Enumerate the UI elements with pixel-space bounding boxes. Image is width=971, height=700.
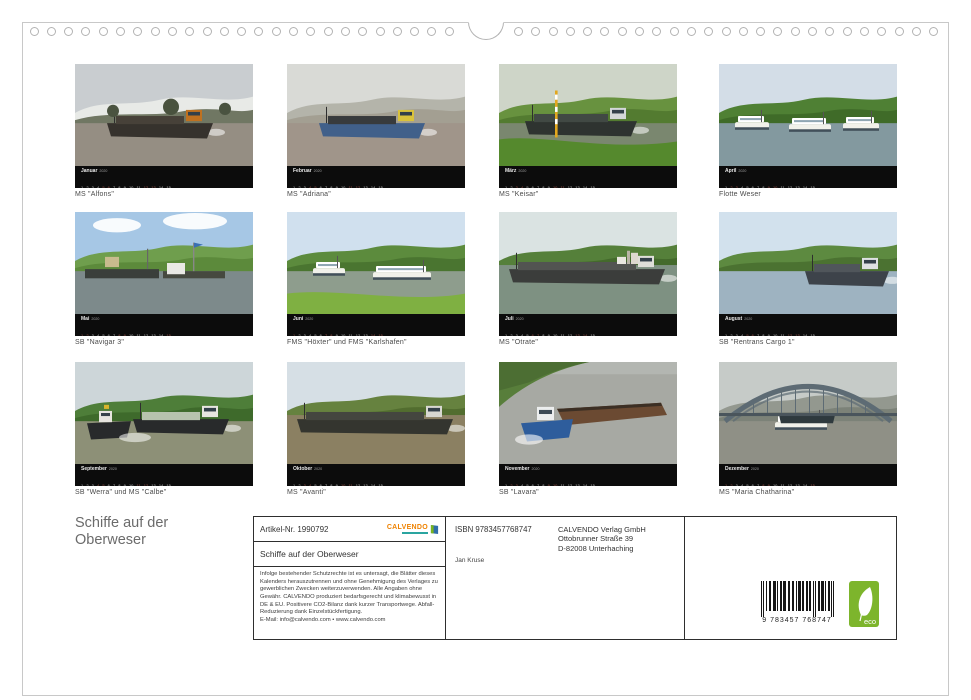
binding-hole xyxy=(756,27,765,36)
thumbnail-caption: Flotte Weser xyxy=(719,191,897,198)
binding-hole xyxy=(185,27,194,36)
binding-hole xyxy=(514,27,523,36)
mini-calendar-strip: Dezember2020 123456789101112131415 16171… xyxy=(719,464,897,486)
binding-hole xyxy=(427,27,436,36)
month-thumbnail: April2020 123456789101112131415 16171819… xyxy=(719,64,897,198)
publisher-name: CALVENDO Verlag GmbH xyxy=(558,525,646,534)
binding-hole xyxy=(116,27,125,36)
month-thumbnail: März2020 123456789101112131415 161718192… xyxy=(499,64,677,198)
calvendo-logo: CALVENDO xyxy=(387,524,439,535)
binding-hole xyxy=(341,27,350,36)
binding-hole xyxy=(47,27,56,36)
month-photo: Februar2020 123456789101112131415 161718… xyxy=(287,64,465,188)
mini-calendar-days: 123456789101112131415 161718192021222324… xyxy=(725,176,895,187)
binding-hole xyxy=(670,27,679,36)
mini-calendar-strip: März2020 123456789101112131415 161718192… xyxy=(499,166,677,188)
barcode-cell: 9 783457 768747 eco xyxy=(685,517,896,639)
page-title: Schiffe auf der Oberweser xyxy=(75,515,168,550)
binding-hole xyxy=(531,27,540,36)
month-photo: Juni2020 123456789101112131415 161718192… xyxy=(287,212,465,336)
month-label: April xyxy=(725,168,736,174)
month-photo-scene xyxy=(287,362,465,464)
mini-calendar-days: 123456789101112131415 161718192021222324… xyxy=(725,474,895,485)
month-photo: Juli2020 123456789101112131415 161718192… xyxy=(499,212,677,336)
month-thumbnail: Oktober2020 123456789101112131415 161718… xyxy=(287,362,465,496)
binding-hole xyxy=(600,27,609,36)
year-label: 2020 xyxy=(99,169,107,173)
thumbnail-caption: MS "Avanti" xyxy=(287,489,465,496)
binding-hole xyxy=(739,27,748,36)
month-thumbnail: Dezember2020 123456789101112131415 16171… xyxy=(719,362,897,496)
isbn: ISBN 9783457768747 xyxy=(455,525,532,534)
mini-calendar-days: 123456789101112131415 161718192021222324… xyxy=(505,474,675,485)
month-thumbnail: September2020 123456789101112131415 1617… xyxy=(75,362,253,496)
binding-hole xyxy=(151,27,160,36)
contact-line: E-Mail: info@calvendo.com • www.calvendo… xyxy=(260,617,439,625)
thumbnail-caption: MS "Maria Chatharina" xyxy=(719,489,897,496)
mini-calendar-days: 123456789101112131415 161718192021222324… xyxy=(81,176,251,187)
month-label: November xyxy=(505,466,529,472)
month-label: September xyxy=(81,466,107,472)
month-label: Juli xyxy=(505,316,514,322)
calendar-back-page: Januar2020 123456789101112131415 1617181… xyxy=(22,22,949,696)
calvendo-tagline xyxy=(402,532,428,534)
binding-hole xyxy=(358,27,367,36)
artikel-nr: Artikel-Nr. 1990792 xyxy=(260,525,328,534)
binding-hole xyxy=(133,27,142,36)
month-photo-scene xyxy=(287,64,465,166)
binding-hole xyxy=(410,27,419,36)
mini-calendar-strip: Juni2020 123456789101112131415 161718192… xyxy=(287,314,465,336)
month-label: Juni xyxy=(293,316,303,322)
year-label: 2020 xyxy=(738,169,746,173)
month-thumbnail: November2020 123456789101112131415 16171… xyxy=(499,362,677,496)
month-thumbnail: Juni2020 123456789101112131415 161718192… xyxy=(287,212,465,346)
month-label: Dezember xyxy=(725,466,749,472)
publisher-street: Ottobrunner Straße 39 xyxy=(558,534,646,543)
binding-hole xyxy=(324,27,333,36)
publisher-city: D-82008 Unterhaching xyxy=(558,544,646,553)
product-info-box: Artikel-Nr. 1990792 CALVENDO Schiffe auf… xyxy=(253,516,897,640)
binding-hole xyxy=(306,27,315,36)
binding-hole xyxy=(722,27,731,36)
year-label: 2020 xyxy=(91,317,99,321)
thumbnail-caption: FMS "Höxter" und FMS "Karlshafen" xyxy=(287,339,465,346)
binding-hole xyxy=(877,27,886,36)
calvendo-logo-icon xyxy=(430,524,439,535)
product-info-cell: Artikel-Nr. 1990792 CALVENDO Schiffe auf… xyxy=(254,517,446,639)
mini-calendar-days: 123456789101112131415 161718192021222324… xyxy=(293,324,463,335)
binding-hole xyxy=(773,27,782,36)
binding-hole xyxy=(618,27,627,36)
binding-hole xyxy=(549,27,558,36)
binding-hole xyxy=(289,27,298,36)
publisher-cell: ISBN 9783457768747 Jan Kruse CALVENDO Ve… xyxy=(446,517,685,639)
binding-hole xyxy=(808,27,817,36)
month-thumbnail: Februar2020 123456789101112131415 161718… xyxy=(287,64,465,198)
thumbnail-caption: MS "Otrate" xyxy=(499,339,677,346)
mini-calendar-strip: April2020 123456789101112131415 16171819… xyxy=(719,166,897,188)
month-thumbnail: Januar2020 123456789101112131415 1617181… xyxy=(75,64,253,198)
month-label: Mai xyxy=(81,316,89,322)
mini-calendar-strip: Juli2020 123456789101112131415 161718192… xyxy=(499,314,677,336)
binding-hole xyxy=(203,27,212,36)
year-label: 2020 xyxy=(109,467,117,471)
mini-calendar-strip: August2020 123456789101112131415 1617181… xyxy=(719,314,897,336)
eco-label: eco xyxy=(864,617,876,626)
month-photo-scene xyxy=(719,362,897,464)
year-label: 2020 xyxy=(516,317,524,321)
barcode-digits: 9 783457 768747 xyxy=(755,617,839,624)
month-photo-scene xyxy=(499,212,677,314)
mini-calendar-days: 123456789101112131415 161718192021222324… xyxy=(81,324,251,335)
year-label: 2020 xyxy=(751,467,759,471)
publisher-address: CALVENDO Verlag GmbH Ottobrunner Straße … xyxy=(558,525,646,553)
month-photo: September2020 123456789101112131415 1617… xyxy=(75,362,253,486)
binding-hole xyxy=(445,27,454,36)
author-name: Jan Kruse xyxy=(455,557,484,564)
binding-hole xyxy=(393,27,402,36)
month-photo: Januar2020 123456789101112131415 1617181… xyxy=(75,64,253,188)
binding-hole xyxy=(825,27,834,36)
binding-hole xyxy=(704,27,713,36)
binding-hole xyxy=(929,27,938,36)
binding-hole xyxy=(583,27,592,36)
calendar-title: Schiffe auf der Oberweser xyxy=(260,549,359,559)
thumbnail-caption: MS "Alfons" xyxy=(75,191,253,198)
month-photo-scene xyxy=(499,362,677,464)
month-photo: November2020 123456789101112131415 16171… xyxy=(499,362,677,486)
month-label: Februar xyxy=(293,168,312,174)
page-title-line1: Schiffe auf der xyxy=(75,515,168,532)
mini-calendar-days: 123456789101112131415 161718192021222324… xyxy=(505,324,675,335)
year-label: 2020 xyxy=(744,317,752,321)
month-photo-scene xyxy=(75,362,253,464)
month-photo: April2020 123456789101112131415 16171819… xyxy=(719,64,897,188)
binding-hole xyxy=(860,27,869,36)
mini-calendar-days: 123456789101112131415 161718192021222324… xyxy=(293,176,463,187)
binding-hole xyxy=(64,27,73,36)
month-photo: Mai2020 123456789101112131415 1617181920… xyxy=(75,212,253,336)
calvendo-logo-text: CALVENDO xyxy=(387,524,428,531)
month-thumbnail: Juli2020 123456789101112131415 161718192… xyxy=(499,212,677,346)
mini-calendar-days: 123456789101112131415 161718192021222324… xyxy=(505,176,675,187)
binding-hole xyxy=(652,27,661,36)
month-photo-scene xyxy=(719,212,897,314)
binding-hole xyxy=(843,27,852,36)
mini-calendar-strip: Mai2020 123456789101112131415 1617181920… xyxy=(75,314,253,336)
month-thumbnail: August2020 123456789101112131415 1617181… xyxy=(719,212,897,346)
month-label: Januar xyxy=(81,168,97,174)
binding-hole xyxy=(566,27,575,36)
month-photo: März2020 123456789101112131415 161718192… xyxy=(499,64,677,188)
binding-hole xyxy=(99,27,108,36)
mini-calendar-days: 123456789101112131415 161718192021222324… xyxy=(725,324,895,335)
eco-badge: eco xyxy=(849,581,879,627)
binding-hole xyxy=(220,27,229,36)
binding-hole xyxy=(687,27,696,36)
month-photo-scene xyxy=(287,212,465,314)
binding-hole xyxy=(912,27,921,36)
hanging-notch xyxy=(468,22,504,40)
thumbnail-caption: SB "Lavara" xyxy=(499,489,677,496)
month-photo-scene xyxy=(719,64,897,166)
year-label: 2020 xyxy=(518,169,526,173)
mini-calendar-strip: September2020 123456789101112131415 1617… xyxy=(75,464,253,486)
binding-hole xyxy=(272,27,281,36)
binding-hole xyxy=(791,27,800,36)
month-photo: August2020 123456789101112131415 1617181… xyxy=(719,212,897,336)
year-label: 2020 xyxy=(531,467,539,471)
year-label: 2020 xyxy=(314,169,322,173)
binding-hole xyxy=(237,27,246,36)
binding-hole xyxy=(81,27,90,36)
month-photo-scene xyxy=(499,64,677,166)
mini-calendar-days: 123456789101112131415 161718192021222324… xyxy=(81,474,251,485)
thumbnail-caption: SB "Navigar 3" xyxy=(75,339,253,346)
mini-calendar-strip: Februar2020 123456789101112131415 161718… xyxy=(287,166,465,188)
thumbnail-caption: SB "Rentrans Cargo 1" xyxy=(719,339,897,346)
binding-hole xyxy=(895,27,904,36)
binding-hole xyxy=(168,27,177,36)
binding-hole xyxy=(635,27,644,36)
thumbnail-caption: MS "Adriana" xyxy=(287,191,465,198)
month-photo-scene xyxy=(75,212,253,314)
binding-hole xyxy=(30,27,39,36)
binding-hole xyxy=(254,27,263,36)
legal-text: Infolge bestehender Schutzrechte ist es … xyxy=(260,571,439,617)
ean-barcode xyxy=(755,581,839,617)
mini-calendar-strip: Oktober2020 123456789101112131415 161718… xyxy=(287,464,465,486)
thumbnail-caption: MS "Keisar" xyxy=(499,191,677,198)
mini-calendar-strip: November2020 123456789101112131415 16171… xyxy=(499,464,677,486)
month-photo: Dezember2020 123456789101112131415 16171… xyxy=(719,362,897,486)
month-thumbnail: Mai2020 123456789101112131415 1617181920… xyxy=(75,212,253,346)
month-label: März xyxy=(505,168,516,174)
month-photo: Oktober2020 123456789101112131415 161718… xyxy=(287,362,465,486)
mini-calendar-strip: Januar2020 123456789101112131415 1617181… xyxy=(75,166,253,188)
month-label: August xyxy=(725,316,742,322)
mini-calendar-days: 123456789101112131415 161718192021222324… xyxy=(293,474,463,485)
year-label: 2020 xyxy=(314,467,322,471)
year-label: 2020 xyxy=(305,317,313,321)
page-title-line2: Oberweser xyxy=(75,532,168,549)
binding-hole xyxy=(376,27,385,36)
month-photo-scene xyxy=(75,64,253,166)
thumbnail-caption: SB "Werra" und MS "Calbe" xyxy=(75,489,253,496)
month-label: Oktober xyxy=(293,466,312,472)
